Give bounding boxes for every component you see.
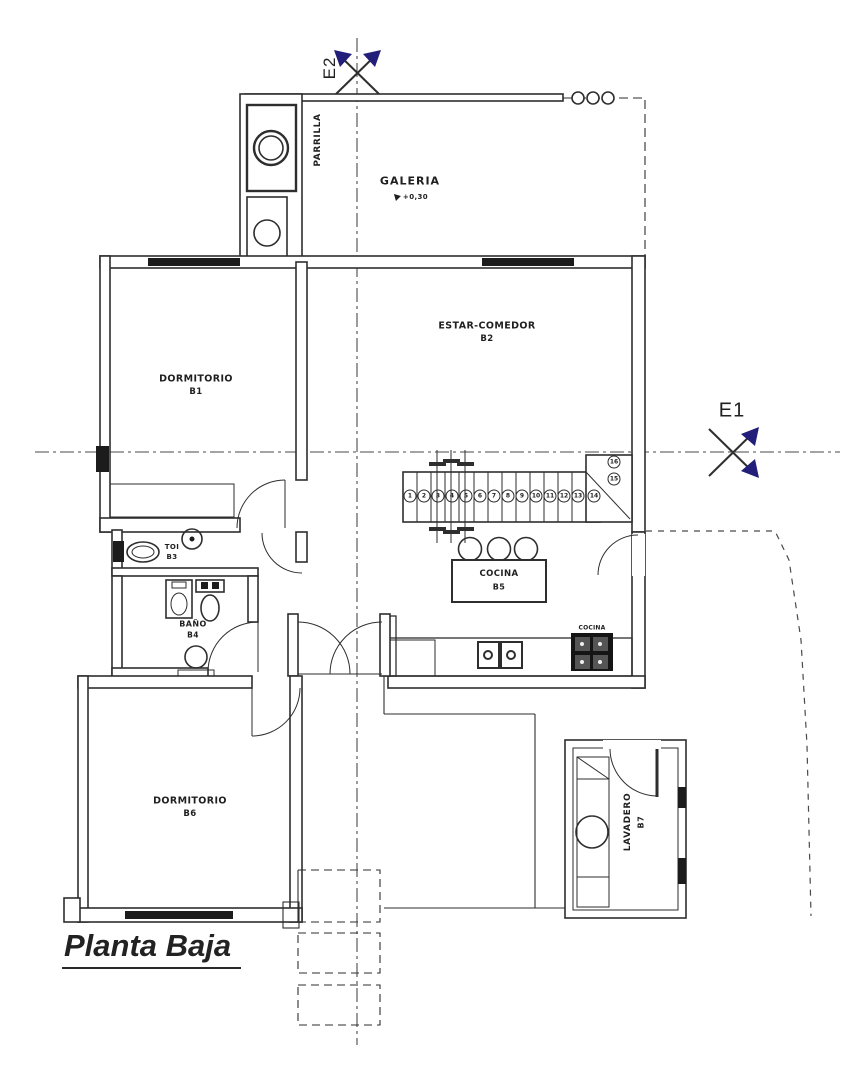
room-code-cocina: B5	[493, 583, 505, 592]
stair-step-number: 4	[446, 490, 459, 503]
stair-step-number: 9	[516, 490, 529, 503]
stair-step-number: 14	[588, 490, 601, 503]
room-code-toi: B3	[166, 553, 177, 561]
toilette-fixtures	[112, 529, 302, 576]
floorplan-page: E2 E1 PARRILLA GALERIA +0,30 ESTAR-COMED…	[0, 0, 861, 1080]
galeria-level-mark: +0,30	[394, 193, 428, 201]
window-band	[678, 787, 686, 808]
door-dormitorio-b1	[237, 480, 285, 528]
window-band	[678, 858, 686, 884]
room-label-bano: BAÑO	[179, 620, 206, 629]
galeria-walls	[245, 92, 645, 260]
room-code-estar: B2	[480, 334, 493, 344]
wardrobe	[110, 484, 234, 517]
stair-step-number: 10	[530, 490, 543, 503]
stair-step-number: 8	[502, 490, 515, 503]
stair-step-number: 2	[418, 490, 431, 503]
stair-step-number: 3	[432, 490, 445, 503]
room-label-dormitorio2: DORMITORIO	[153, 796, 227, 807]
parrilla-fixture	[240, 94, 302, 262]
room-label-cocina: COCINA	[480, 569, 519, 579]
stair-step-number: 1	[404, 490, 417, 503]
stair-step-number: 7	[488, 490, 501, 503]
stove-label: COCINA	[578, 625, 605, 632]
kitchen-fixtures	[383, 538, 632, 677]
stair-step-number: 11	[544, 490, 557, 503]
room-label-estar: ESTAR-COMEDOR	[438, 321, 535, 332]
hall-double-doors	[288, 532, 390, 676]
toilet	[196, 580, 224, 621]
section-marker-e1-label: E1	[719, 400, 745, 423]
room-label-toi: TOI	[165, 543, 180, 551]
stool	[515, 538, 538, 561]
section-marker-e2-label: E2	[320, 57, 340, 80]
window-band	[482, 258, 574, 266]
level-marker-icon	[394, 194, 401, 201]
kitchen-island	[452, 560, 546, 602]
room-label-dormitorio1: DORMITORIO	[159, 374, 233, 385]
room-label-lavadero: LAVADERO	[623, 793, 633, 851]
room-code-lavadero: B7	[637, 816, 646, 829]
room-code-dormitorio1: B1	[189, 387, 202, 397]
patio-lines	[384, 676, 568, 908]
galeria-level-value: +0,30	[403, 193, 428, 201]
kitchen-sink	[478, 642, 522, 668]
room-code-bano: B4	[187, 631, 199, 640]
stove	[571, 633, 613, 671]
bidet	[166, 580, 192, 618]
room-code-dormitorio2: B6	[183, 809, 196, 819]
stair-step-number: 12	[558, 490, 571, 503]
window-band	[125, 911, 233, 919]
bath-sink	[185, 646, 207, 668]
stair-step-number: 15	[608, 473, 621, 486]
entry-steps	[283, 870, 380, 1025]
room-label-galeria: GALERIA	[380, 175, 440, 188]
stair-step-number: 13	[572, 490, 585, 503]
window-band	[148, 258, 240, 266]
plan-title: Planta Baja	[62, 928, 241, 969]
stair-step-number: 5	[460, 490, 473, 503]
stair-step-number: 16	[608, 456, 621, 469]
stair-step-number: 6	[474, 490, 487, 503]
stool	[488, 538, 511, 561]
plan-title-text: Planta Baja	[64, 928, 231, 963]
stool	[459, 538, 482, 561]
door-bathroom	[208, 622, 258, 672]
floorplan-drawing	[0, 0, 861, 1080]
room-label-parrilla: PARRILLA	[313, 113, 323, 166]
